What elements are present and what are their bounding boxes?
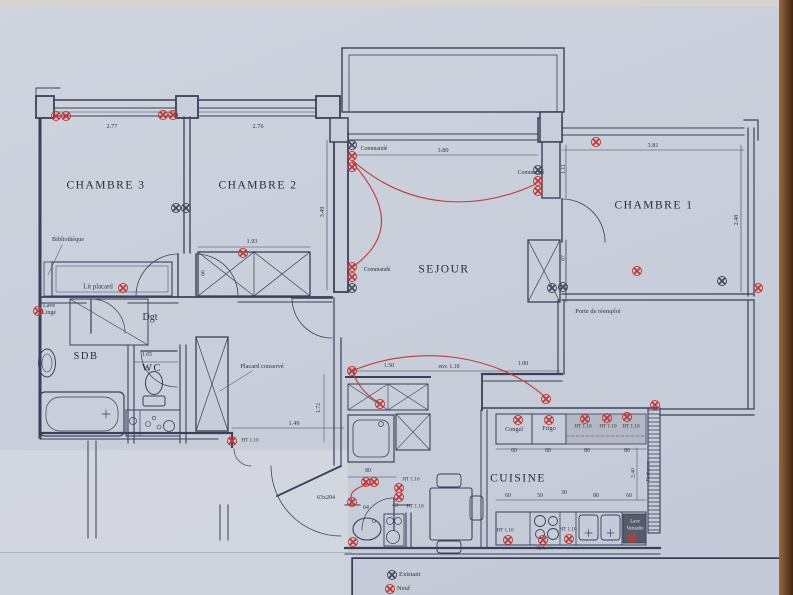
annotation-bibliotheque: Bibliothèque — [52, 237, 84, 243]
dim-60d: 60 — [626, 494, 632, 500]
existing-socket-icon — [547, 283, 557, 293]
annotation-lave-vaisselle-2: Vaisselle — [626, 528, 643, 533]
new-socket-icon — [168, 110, 178, 120]
room-label-chambre3: CHAMBRE 3 — [67, 180, 146, 192]
annotation-ht110-6: HT 1.10 — [559, 527, 576, 532]
new-socket-icon — [533, 186, 543, 196]
new-socket-icon — [118, 283, 128, 293]
annotation-placard-conserve: Placard conservé — [240, 364, 283, 370]
annotation-porte-reemploi: Porte de réemploi — [575, 309, 620, 315]
new-socket-icon — [564, 534, 574, 544]
existing-socket-icon — [347, 283, 357, 293]
dim-60c: 60 — [505, 494, 511, 500]
dim-64: 64 — [363, 506, 369, 512]
new-socket-icon — [238, 248, 248, 258]
new-socket-icon — [753, 283, 763, 293]
new-socket-icon — [503, 535, 513, 545]
new-socket-icon — [347, 151, 357, 161]
annotation-commande-1: Commandé — [361, 147, 388, 153]
dim-240: 2.40 — [631, 468, 637, 478]
annotation-commande-3: Commandé — [364, 268, 391, 274]
dim-193: 1.93 — [246, 239, 257, 245]
dim-276: 2.76 — [252, 124, 263, 130]
new-socket-icon — [544, 415, 554, 425]
annotation-ht110-2: HT 1.10 — [574, 424, 591, 429]
legend-item-existant: Existant — [387, 571, 420, 578]
dim-100: 1.00 — [518, 362, 528, 368]
existing-socket-icon — [717, 276, 727, 286]
legend-item-neuf: Neuf — [385, 585, 410, 592]
annotation-amperage: 32A — [536, 546, 545, 552]
dim-80d: 80 — [593, 494, 599, 500]
dim-111: 1.11 — [562, 164, 568, 174]
dim-105: 1.05 — [142, 353, 152, 359]
existing-socket-icon — [171, 203, 181, 213]
new-socket-icon — [513, 415, 523, 425]
wire-path — [352, 160, 536, 202]
new-socket-icon — [533, 176, 543, 186]
legend-label-neuf: Neuf — [397, 585, 410, 592]
dim-30: 30 — [561, 491, 567, 497]
existing-socket-icon — [387, 570, 397, 580]
dim-80c: 80 — [624, 449, 630, 455]
room-label-chambre2: CHAMBRE 2 — [219, 180, 298, 192]
room-label-cuisine: CUISINE — [490, 473, 546, 485]
annotation-frigo: Frigo — [542, 426, 555, 432]
new-socket-icon — [347, 162, 357, 172]
new-socket-icon — [580, 414, 590, 424]
dim-env110: env. 1.10 — [438, 365, 459, 371]
new-socket-icon — [347, 497, 357, 507]
new-socket-icon — [591, 137, 601, 147]
new-socket-icon — [394, 492, 404, 502]
new-socket-icon — [602, 413, 612, 423]
annotation-ht110-8: HT 1.10 — [406, 504, 423, 509]
annotation-ht110-3: HT 1.10 — [599, 424, 616, 429]
new-socket-icon — [348, 537, 358, 547]
annotation-ht110-4: HT 1.10 — [622, 424, 639, 429]
photo-right-edge — [779, 0, 793, 595]
dim-248: 2.48 — [734, 215, 740, 226]
annotation-ht110-7: HT 1.10 — [402, 477, 419, 482]
annotation-congel: Congel — [505, 427, 523, 433]
new-socket-icon — [538, 535, 548, 545]
room-label-sejour: SEJOUR — [418, 264, 469, 276]
legend: Existant Neuf — [352, 558, 793, 595]
new-socket-icon — [385, 584, 395, 594]
room-label-dgt: Dgt — [143, 313, 158, 323]
new-socket-icon — [61, 111, 71, 121]
annotation-linge: Linge — [42, 310, 56, 316]
existing-socket-icon — [181, 203, 191, 213]
existing-socket-icon — [347, 140, 357, 150]
new-socket-icon — [33, 306, 43, 316]
room-label-sdb: SDB — [74, 352, 99, 363]
new-socket-icon — [632, 266, 642, 276]
new-socket-icon — [541, 394, 551, 404]
dim-150: 1.50 — [384, 364, 394, 370]
dim-172: 1.72 — [317, 403, 323, 413]
annotation-ht110-1: HT 1.10 — [241, 438, 258, 443]
dim-60b: 60 — [545, 449, 551, 455]
new-socket-icon — [347, 272, 357, 282]
dim-60a: 60 — [511, 449, 517, 455]
dim-80a: 80 — [365, 469, 371, 475]
annotation-ht110-5: HT 1.10 — [496, 528, 513, 533]
dim-277: 2.77 — [106, 124, 117, 130]
dim-349: 3.49 — [320, 207, 326, 218]
annotation-door-size: 63x204 — [317, 495, 335, 501]
dim-80b: 80 — [584, 449, 590, 455]
annotation-radiateur: Radiateur — [646, 461, 651, 481]
annotation-lave-vaisselle-1: Lave — [630, 521, 640, 526]
annotation-lit-placard: Lit placard — [83, 285, 113, 292]
new-socket-icon — [650, 400, 660, 410]
floorplan-photo: CHAMBRE 3CHAMBRE 2CHAMBRE 1SEJOURCUISINE… — [0, 0, 793, 595]
new-socket-icon — [622, 412, 632, 422]
room-label-chambre1: CHAMBRE 1 — [615, 200, 694, 212]
annotation-lave: Lave — [43, 303, 55, 309]
room-label-wc: WC — [142, 364, 162, 375]
new-socket-icon — [347, 366, 357, 376]
legend-label-existant: Existant — [399, 571, 420, 578]
wire-path — [352, 162, 382, 266]
dim-50: 50 — [537, 494, 543, 500]
dim-60e: 60 — [201, 270, 207, 276]
new-socket-icon — [375, 399, 385, 409]
dim-149: 1.49 — [288, 421, 299, 427]
new-socket-icon — [369, 477, 379, 487]
new-socket-icon — [347, 262, 357, 272]
new-socket-icon — [158, 110, 168, 120]
existing-socket-icon — [558, 282, 568, 292]
new-socket-icon — [227, 436, 237, 446]
dim-380: 3.80 — [437, 148, 448, 154]
existing-socket-icon — [533, 165, 543, 175]
dim-40: 40 — [392, 504, 398, 510]
dim-381: 3.81 — [647, 143, 658, 149]
new-socket-icon — [627, 533, 637, 543]
new-socket-icon — [51, 111, 61, 121]
dim-67: 67 — [561, 255, 567, 261]
